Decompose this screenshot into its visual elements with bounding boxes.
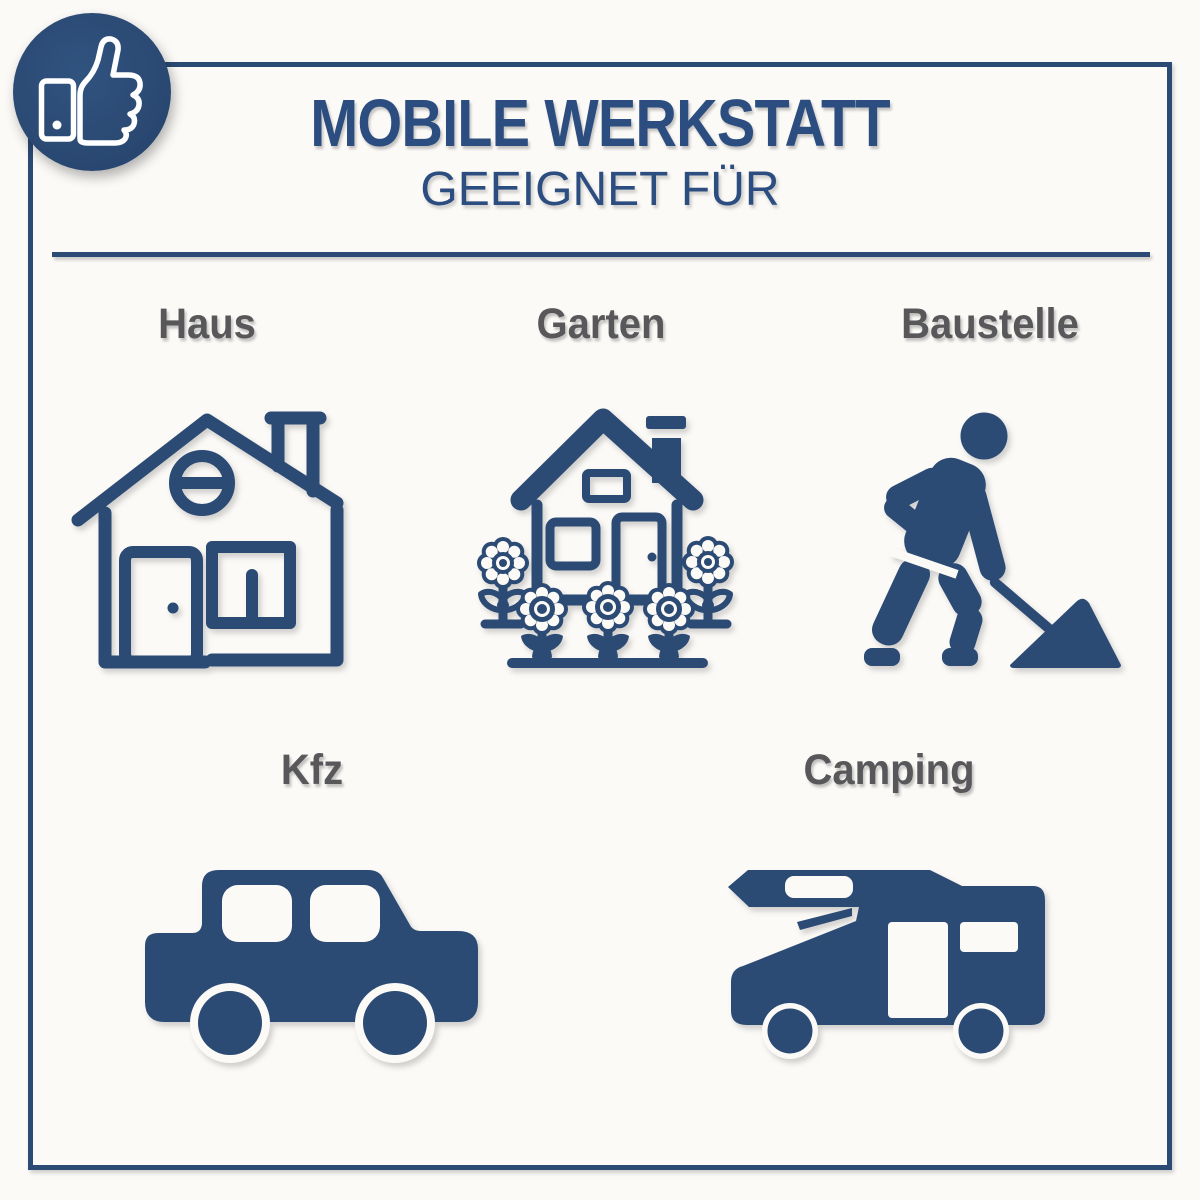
label-kfz: Kfz	[173, 749, 452, 792]
label-haus: Haus	[68, 303, 347, 346]
camper-van-icon	[715, 855, 1065, 1070]
page-title: MOBILE WERKSTATT	[84, 90, 1116, 157]
house-icon	[60, 398, 360, 683]
car-icon	[130, 855, 500, 1070]
label-camping: Camping	[750, 749, 1029, 792]
page-subtitle: GEEIGNET FÜR	[0, 166, 1200, 214]
construction-worker-icon	[820, 405, 1160, 690]
label-baustelle: Baustelle	[851, 303, 1130, 346]
garden-house-icon	[440, 405, 760, 675]
header-divider	[52, 252, 1150, 257]
label-garten: Garten	[462, 303, 741, 346]
infographic-canvas: MOBILE WERKSTATT GEEIGNET FÜR Haus Garte…	[0, 0, 1200, 1200]
